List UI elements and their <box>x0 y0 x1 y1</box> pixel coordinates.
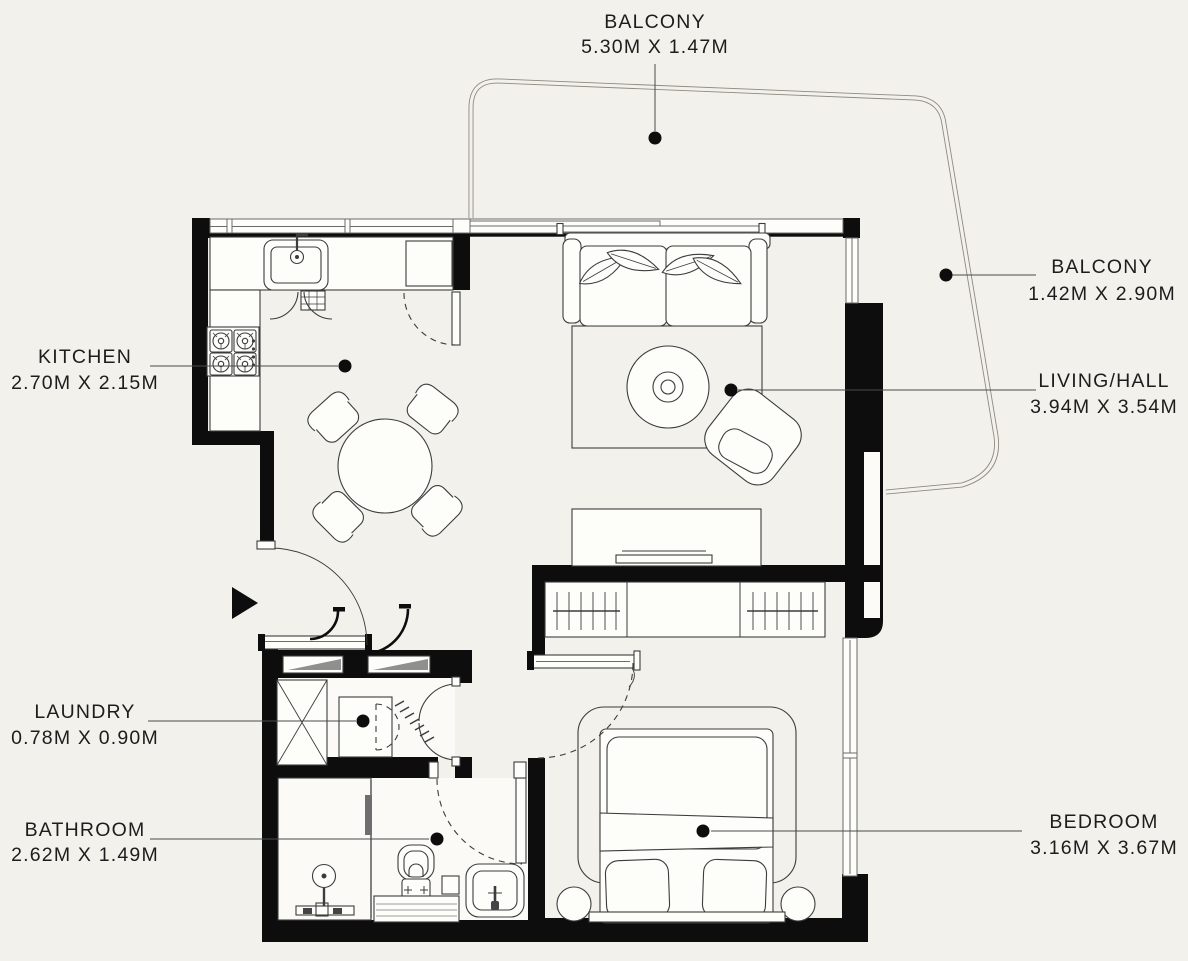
kitchen-area <box>207 235 466 546</box>
balcony-top-name: BALCONY <box>604 11 706 33</box>
laundry-dims: 0.78M X 0.90M <box>11 727 159 749</box>
pillow <box>605 859 670 919</box>
west-wall-lower <box>262 648 278 920</box>
sofa-arm <box>563 239 581 323</box>
balcony-right-name: BALCONY <box>1051 256 1153 278</box>
hall-stub-wall <box>532 565 545 665</box>
floor-plan: BALCONY 5.30M X 1.47M BALCONY 1.42M X 2.… <box>0 0 1188 961</box>
bathroom-name: BATHROOM <box>25 819 146 841</box>
entry-wall <box>260 443 274 545</box>
dining-table <box>338 419 432 513</box>
wardrobe <box>545 582 825 637</box>
living-name: LIVING/HALL <box>1038 370 1169 392</box>
bathroom-door-leaf <box>516 778 526 863</box>
armchair <box>697 381 810 493</box>
balcony-slider-panel-b <box>560 226 762 232</box>
balcony-slider-panel-a <box>470 221 660 226</box>
living-bedroom-wall <box>532 565 883 582</box>
laundry-area <box>258 604 460 766</box>
bedroom-name: BEDROOM <box>1049 811 1158 833</box>
towel-rail <box>365 795 372 835</box>
laundry-name: LAUNDRY <box>34 701 135 723</box>
tv <box>616 555 712 563</box>
laundry-marker <box>357 715 370 728</box>
entry-door-swing <box>270 548 367 645</box>
labels: BALCONY 5.30M X 1.47M BALCONY 1.42M X 2.… <box>11 11 1178 866</box>
toilet <box>398 845 434 880</box>
balcony-right-dims: 1.42M X 2.90M <box>1028 283 1176 305</box>
kitchen-door-swing <box>404 293 456 345</box>
kitchen-west-wall <box>192 233 208 445</box>
side-table <box>781 887 815 921</box>
living-area <box>563 233 809 587</box>
bathroom-bedroom-wall <box>528 758 545 924</box>
living-dims: 3.94M X 3.54M <box>1030 396 1178 418</box>
sofa-arm <box>749 239 767 323</box>
closet-door-swing <box>310 611 338 639</box>
label-living: LIVING/HALL 3.94M X 3.54M <box>725 370 1178 418</box>
side-table <box>557 887 591 921</box>
label-balcony-top: BALCONY 5.30M X 1.47M <box>581 11 729 145</box>
cistern-box <box>442 876 459 894</box>
bed-base <box>589 912 785 922</box>
bathroom-dims: 2.62M X 1.49M <box>11 844 159 866</box>
kitchen-door-leaf <box>452 292 460 345</box>
cabinet-door-swing <box>270 292 298 319</box>
vanity-counter <box>374 896 459 922</box>
entrance-arrow-icon <box>232 587 258 619</box>
kitchen-counter-top <box>210 237 453 290</box>
bedroom-marker <box>697 825 710 838</box>
pillar-recess <box>864 452 880 618</box>
coffee-table <box>627 346 709 428</box>
entry-door-hinge <box>257 541 275 549</box>
pillow <box>702 859 767 919</box>
balcony-top-marker <box>649 132 662 145</box>
label-kitchen: KITCHEN 2.70M X 2.15M <box>11 346 351 394</box>
blanket-band <box>600 813 773 851</box>
kitchen-marker <box>339 360 352 373</box>
living-marker <box>725 384 738 397</box>
bedroom-dims: 3.16M X 3.67M <box>1030 837 1178 859</box>
kitchen-name: KITCHEN <box>38 346 132 368</box>
bathroom-marker <box>431 833 444 846</box>
kitchen-dims: 2.70M X 2.15M <box>11 372 159 394</box>
bedroom-area <box>545 582 825 923</box>
balcony-right-marker <box>940 269 953 282</box>
kitchen-divider-stub <box>453 233 470 290</box>
bathroom-area <box>278 762 528 922</box>
balcony-top-dims: 5.30M X 1.47M <box>581 36 729 58</box>
